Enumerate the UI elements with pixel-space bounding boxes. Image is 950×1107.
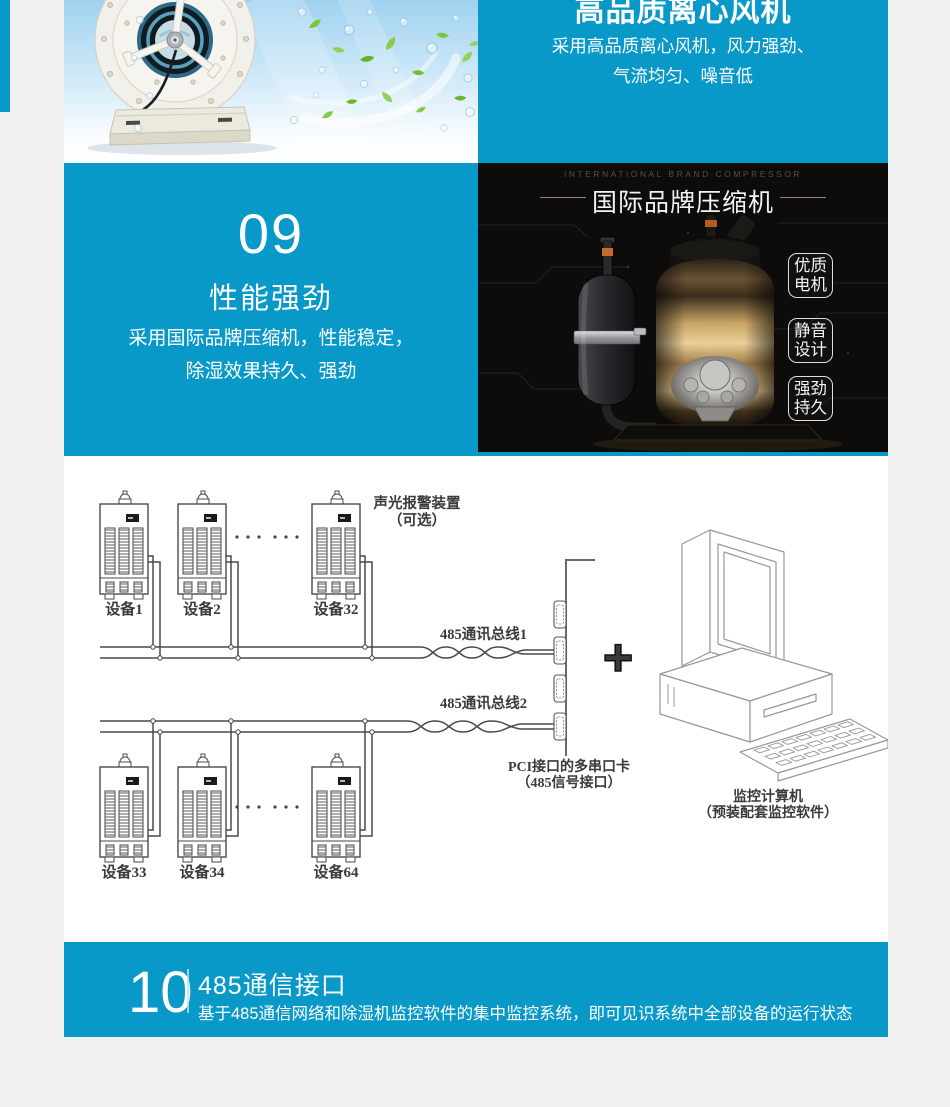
card-label-line2: （485信号接口） [517, 774, 622, 791]
title-rule-right [780, 197, 826, 198]
device-label-33: 设备33 [101, 863, 146, 881]
performance-text-panel: 09 性能强劲 采用国际品牌压缩机，性能稳定， 除湿效果持久、强劲 [64, 163, 478, 456]
computer-label-line2: （预装配套监控软件） [698, 804, 838, 821]
device-label-32: 设备32 [313, 600, 358, 618]
alarm-label-line1: 声光报警装置 [373, 494, 461, 512]
section-network-diagram: + [64, 456, 888, 942]
device-label-64: 设备64 [313, 863, 359, 881]
ellipsis-dots [235, 535, 298, 808]
performance-line1: 采用国际品牌压缩机，性能稳定， [64, 323, 478, 350]
fan-subtitle-line1: 采用高品质离心风机，风力强劲、 [478, 33, 888, 58]
compressor-subtitle-en: INTERNATIONAL BRAND COMPRESSOR [478, 169, 888, 179]
computer-label-line1: 监控计算机 [733, 788, 803, 805]
feature-badge-silent: 静音 设计 [788, 318, 833, 363]
serial-card [554, 559, 595, 756]
fan-illustration [64, 0, 478, 163]
bus1-label: 485通讯总线1 [440, 625, 527, 643]
left-accent-strip [0, 0, 10, 112]
device-label-1: 设备1 [105, 600, 143, 618]
device-row-top [100, 491, 360, 599]
compressor-title: 国际品牌压缩机 [478, 183, 888, 219]
bus2-label: 485通讯总线2 [440, 694, 527, 712]
alarm-label-line2: （可选） [388, 511, 446, 529]
comm-description: 基于485通信网络和除湿机监控软件的集中监控系统，即可见识系统中全部设备的运行状… [198, 1000, 883, 1024]
product-detail-page: 高品质离心风机 采用高品质离心风机，风力强劲、 气流均匀、噪音低 09 性能强劲… [0, 0, 950, 1107]
section-fan: 高品质离心风机 采用高品质离心风机，风力强劲、 气流均匀、噪音低 [64, 0, 888, 163]
network-diagram: + [64, 456, 888, 942]
mounting-base [614, 425, 822, 440]
device-row-bottom [100, 754, 360, 862]
section-485-comm: 10 485通信接口 基于485通信网络和除湿机监控软件的集中监控系统，即可见识… [64, 942, 888, 1037]
card-connectors [554, 601, 566, 740]
plus-icon: + [603, 629, 633, 687]
computer-icon [660, 530, 888, 781]
device-label-34: 设备34 [179, 863, 225, 881]
performance-line2: 除湿效果持久、强劲 [64, 356, 478, 383]
section-performance: 09 性能强劲 采用国际品牌压缩机，性能稳定， 除湿效果持久、强劲 [64, 163, 888, 456]
divider-line [187, 969, 189, 1013]
card-label-line1: PCI接口的多串口卡 [508, 758, 630, 775]
device-label-2: 设备2 [183, 600, 221, 618]
compressor-image: INTERNATIONAL BRAND COMPRESSOR 国际品牌压缩机 优… [478, 163, 888, 452]
fan-title: 高品质离心风机 [478, 0, 888, 30]
feature-badge-motor: 优质 电机 [788, 253, 833, 298]
section-number-09: 09 [64, 201, 478, 266]
fan-image [64, 0, 478, 163]
fan-hub [167, 32, 183, 48]
title-rule-left [540, 197, 586, 198]
comm-title: 485通信接口 [198, 966, 347, 1002]
product-detail-content: 高品质离心风机 采用高品质离心风机，风力强劲、 气流均匀、噪音低 09 性能强劲… [64, 0, 888, 1037]
feature-badge-durable: 强劲 持久 [788, 376, 833, 421]
fan-text-panel: 高品质离心风机 采用高品质离心风机，风力强劲、 气流均匀、噪音低 [478, 0, 888, 163]
section-number-10: 10 [128, 959, 193, 1026]
performance-title: 性能强劲 [64, 275, 478, 317]
fan-subtitle-line2: 气流均匀、噪音低 [478, 63, 888, 88]
